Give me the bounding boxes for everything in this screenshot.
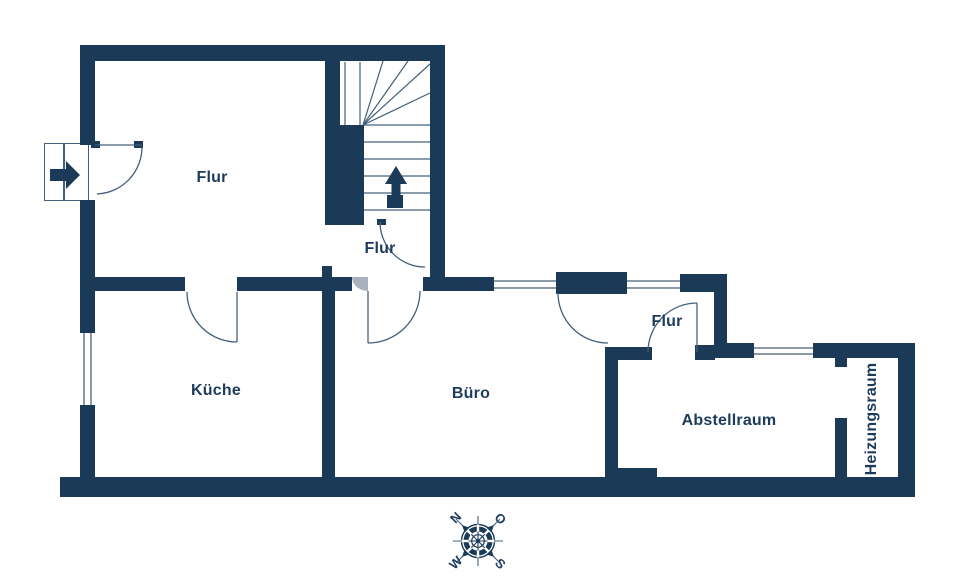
flur-small-door	[558, 293, 608, 343]
compass-letter-south: S	[489, 553, 512, 576]
wall-kueche-nub	[322, 266, 332, 277]
plan-graphics	[0, 0, 960, 588]
kueche-door	[187, 292, 237, 342]
wall-kueche-buero	[322, 277, 335, 477]
compass-letter-west: W	[445, 552, 468, 575]
window-mid-1-line	[494, 287, 556, 289]
wall-mid-thick	[556, 272, 627, 294]
window-mid-1-line	[494, 280, 556, 282]
wall-left-mid	[80, 200, 95, 292]
wall-top	[80, 45, 445, 61]
wall-bottom	[60, 477, 915, 497]
floor-plan: Flur Flur Küche Büro Flur Abstellraum He…	[0, 0, 960, 588]
buero-door	[368, 291, 420, 343]
window-mid-2-line	[627, 287, 680, 289]
entrance-door	[91, 141, 143, 194]
wall-abstell-bottom-block	[618, 468, 657, 477]
stair-door-jamb	[377, 219, 386, 225]
wall-abstell-top-left	[605, 347, 652, 360]
wall-stair-block	[338, 125, 364, 225]
window-mid-2-line	[627, 280, 680, 282]
room-label-kueche: Küche	[191, 382, 241, 400]
entrance-step-divider	[63, 143, 65, 201]
wall-left-upper	[80, 45, 95, 145]
window-kueche-line	[90, 333, 93, 405]
room-label-heizungsraum: Heizungsraum	[863, 363, 881, 476]
wall-mid-1	[95, 277, 185, 291]
wall-right-upper	[430, 45, 445, 291]
door-leaf-gray-wedge	[352, 277, 368, 291]
wall-heiz-stub	[835, 358, 847, 367]
wall-rightsec-top-left	[714, 343, 754, 358]
compass-letter-north: N	[445, 507, 468, 530]
wall-abstell-top-right	[695, 345, 715, 360]
room-label-flur-main: Flur	[196, 169, 227, 187]
room-label-flur-small: Flur	[651, 313, 682, 331]
wall-right-outer	[898, 343, 915, 497]
wall-heiz-lower	[835, 418, 847, 482]
wall-left-kueche-upper	[80, 292, 95, 333]
compass-rose-icon	[434, 497, 522, 585]
entrance-step	[44, 143, 89, 201]
window-abstell-line	[754, 353, 813, 355]
wall-mid-3	[423, 277, 494, 291]
room-label-flur-landing: Flur	[364, 240, 395, 258]
wall-left-kueche-lower	[80, 405, 95, 477]
compass-letter-east: O	[489, 508, 512, 531]
window-kueche-line	[83, 333, 86, 405]
room-label-abstellraum: Abstellraum	[682, 412, 777, 430]
wall-small-flur-right	[714, 274, 727, 345]
wall-stair-stub	[387, 195, 403, 208]
wall-buero-abstell	[605, 347, 618, 477]
room-label-buero: Büro	[452, 385, 490, 403]
window-abstell-line	[754, 347, 813, 349]
